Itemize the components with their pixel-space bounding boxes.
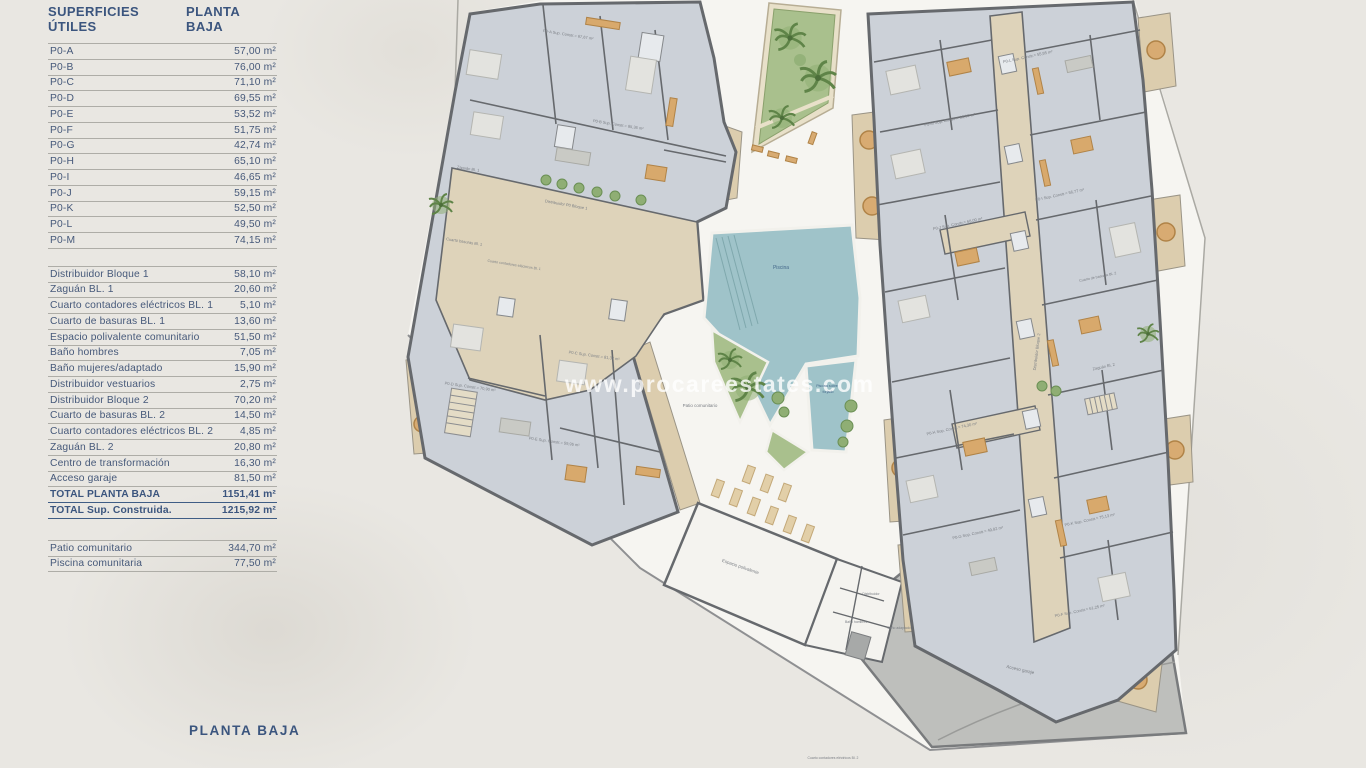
- plan-label: Cuarto contadores eléctricos Bl. 2: [808, 756, 859, 760]
- plan-label: Distribuidor: [862, 592, 880, 596]
- plan-label: Baño hombres: [845, 620, 867, 624]
- page: SUPERFICIES ÚTILES PLANTA BAJA P0-A57,00…: [0, 0, 1366, 768]
- small-pool-label: Piscina sobre: [816, 384, 838, 388]
- floor-plan: www.procareestates.com P0-A Sup. Constr.…: [0, 0, 1366, 768]
- plan-label: Baño adaptado: [887, 626, 910, 630]
- pool-label: Piscina: [773, 265, 789, 271]
- patio-label: Patio comunitario: [683, 403, 718, 408]
- building-block-2: [852, 2, 1193, 722]
- small-pool-label: forjado: [823, 390, 834, 394]
